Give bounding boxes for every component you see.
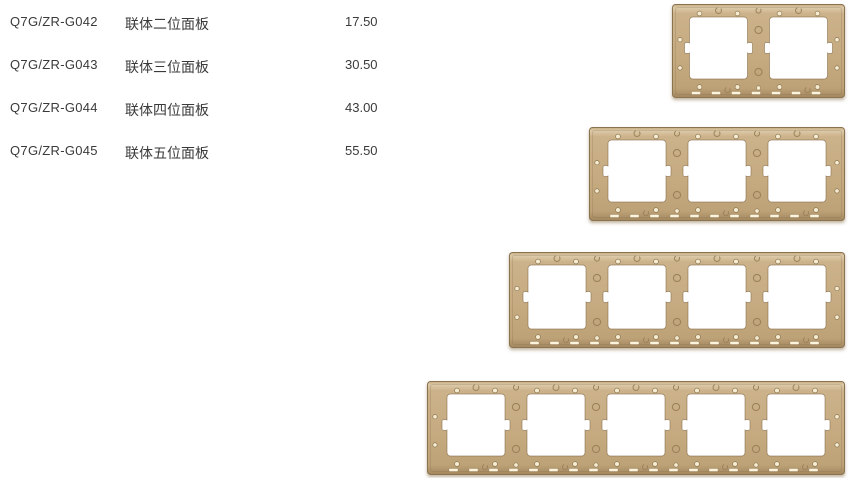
panel-image-5gang: [427, 381, 845, 475]
panel-image-3gang: [589, 127, 845, 221]
product-gallery: [0, 0, 850, 478]
catalog-page: Q7G/ZR-G042 联体二位面板 17.50 Q7G/ZR-G043 联体三…: [0, 0, 850, 478]
panel-image-2gang: [672, 4, 845, 98]
panel-image-4gang: [509, 252, 845, 348]
